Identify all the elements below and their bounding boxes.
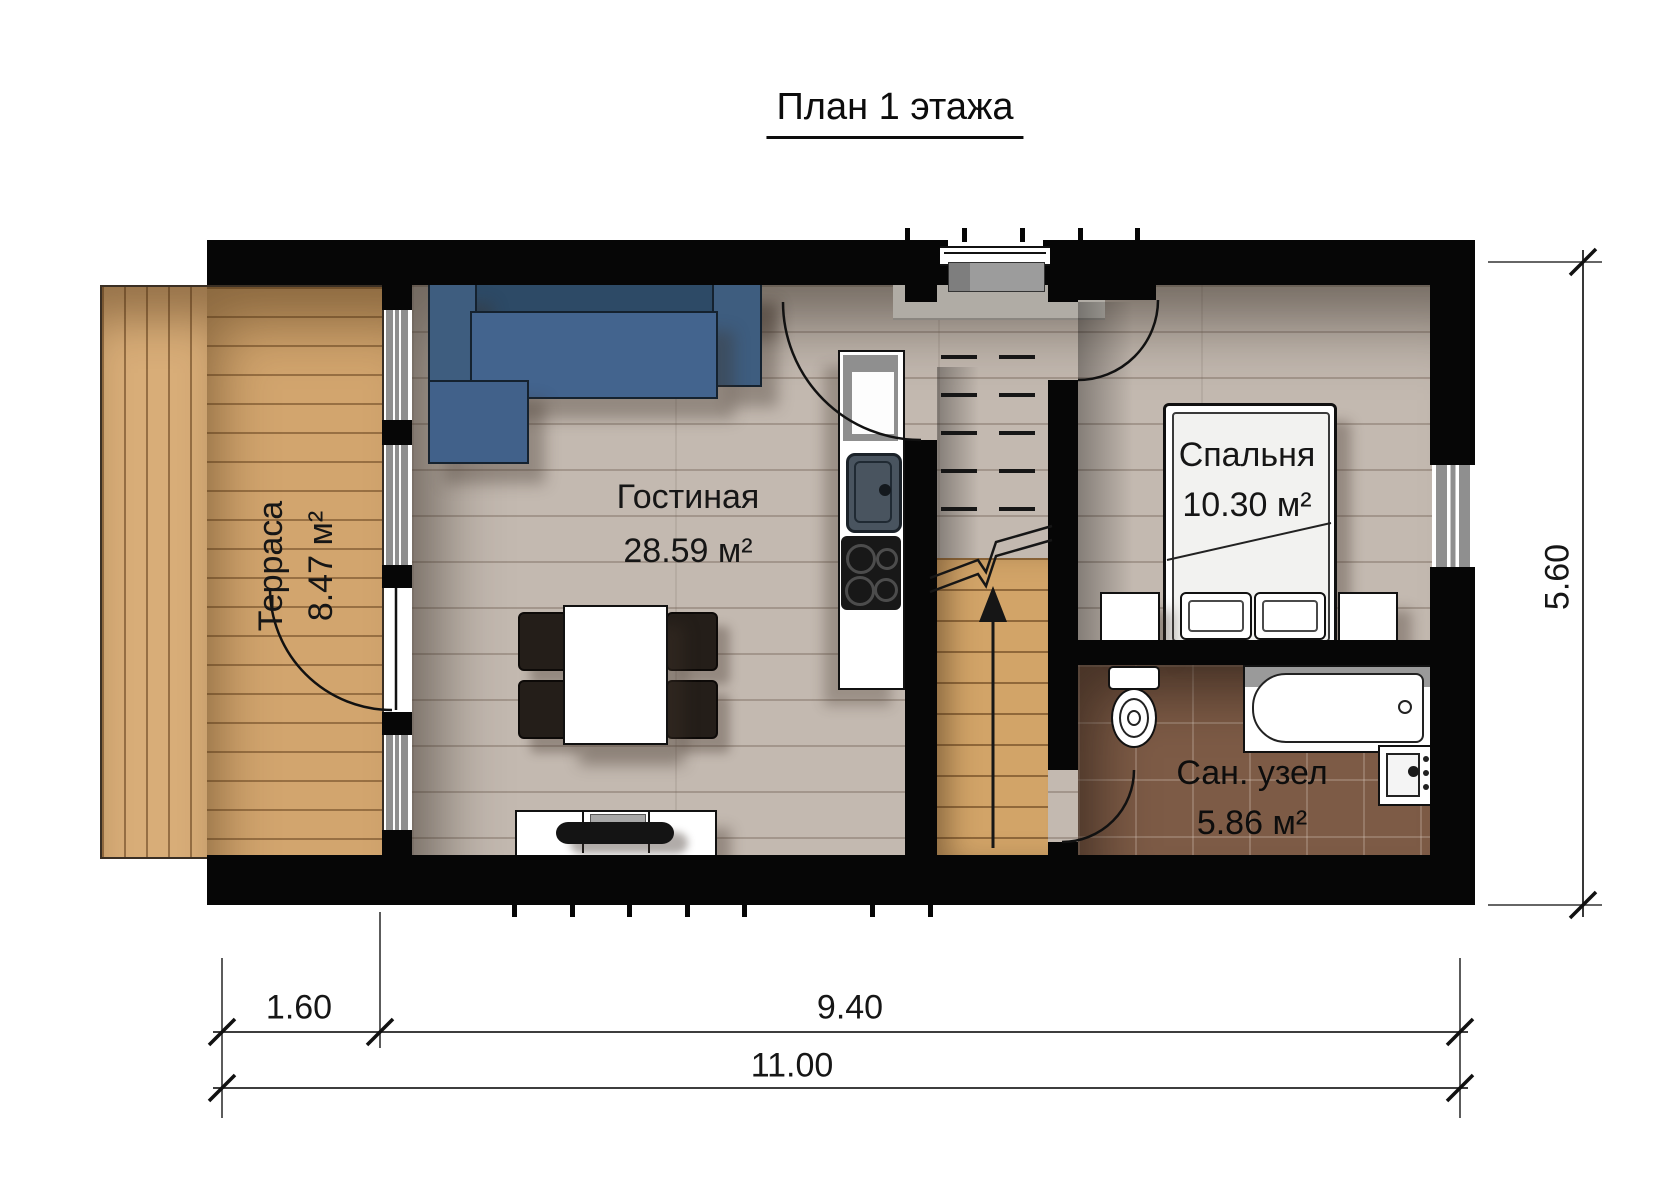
dim-depth: 5.60	[1539, 544, 1578, 610]
living-room-area: 28.59 м²	[617, 533, 760, 569]
cladding-tick	[570, 903, 575, 917]
living-room-window	[386, 735, 408, 830]
west-wall-pier	[382, 712, 412, 735]
kitchen-stair-wall	[905, 440, 937, 855]
bedroom-bathroom-divider-wall	[1078, 640, 1432, 665]
west-wall-pier	[382, 565, 412, 588]
floor-plan-canvas: План 1 этажа	[0, 0, 1680, 1187]
exterior-wall-top-left	[207, 240, 948, 285]
tv-screen	[556, 822, 674, 844]
cooktop-burner-2	[876, 548, 898, 570]
washbasin-knob	[1423, 784, 1429, 790]
cooktop-burner-1	[846, 544, 876, 574]
exterior-wall-bottom	[207, 855, 1475, 905]
plan-title: План 1 этажа	[766, 86, 1023, 139]
bedroom-label: Спальня 10.30 м²	[1179, 430, 1316, 530]
terrace-label: Терраса 8.47 м²	[246, 501, 346, 631]
dining-chair	[666, 612, 718, 671]
terrace-area: 8.47 м²	[296, 501, 346, 631]
dining-chair	[666, 680, 718, 739]
living-room-window	[386, 445, 408, 565]
bathtub-drain	[1398, 700, 1412, 714]
terrace-name: Терраса	[246, 501, 296, 631]
staircase-lower-flight	[937, 558, 1048, 855]
dim-house-width: 9.40	[817, 989, 883, 1028]
cladding-tick	[685, 903, 690, 917]
exterior-wall-top-right	[1043, 240, 1475, 285]
west-wall-pier	[382, 420, 412, 445]
cooktop-burner-3	[845, 576, 875, 606]
cladding-tick	[1135, 228, 1140, 242]
bedroom-door-leaf	[1078, 285, 1156, 300]
cladding-tick	[962, 228, 967, 242]
bathroom-name: Сан. узел	[1176, 748, 1327, 798]
bedroom-name: Спальня	[1179, 430, 1316, 480]
dim-total-width: 11.00	[751, 1047, 834, 1086]
bedroom-area: 10.30 м²	[1179, 480, 1316, 530]
entrance-threshold-line	[944, 252, 1046, 254]
kitchen-cabinet-inner	[852, 372, 894, 434]
cladding-tick	[928, 903, 933, 917]
bed-pillow-left-inner	[1188, 600, 1244, 632]
bathroom-area: 5.86 м²	[1176, 798, 1327, 848]
living-room-name: Гостиная	[617, 461, 760, 533]
cooktop-burner-4	[874, 578, 898, 602]
sofa-chaise	[428, 380, 529, 464]
terrace-edge-decking	[100, 285, 211, 859]
exterior-wall-east-lower	[1430, 567, 1475, 855]
cladding-tick	[512, 903, 517, 917]
cladding-tick	[1020, 228, 1025, 242]
west-wall-pier	[382, 830, 412, 855]
nightstand-left	[1100, 592, 1160, 644]
cladding-tick	[1078, 228, 1083, 242]
cladding-tick	[905, 228, 910, 242]
cladding-tick	[627, 903, 632, 917]
toilet-tank	[1108, 666, 1160, 690]
bed-pillow-right-inner	[1262, 600, 1318, 632]
bathroom-west-wall-stub	[1048, 842, 1078, 855]
dining-table	[563, 605, 668, 745]
washbasin-knob	[1423, 770, 1429, 776]
cladding-tick	[870, 903, 875, 917]
sofa-armrest-right	[712, 283, 762, 387]
bedroom-window	[1436, 465, 1470, 567]
nightstand-right	[1338, 592, 1398, 644]
kitchen-faucet	[879, 484, 891, 496]
dim-terrace-width: 1.60	[266, 989, 332, 1028]
living-room-label: Гостиная 28.59 м²	[617, 461, 760, 569]
bathroom-west-wall	[1048, 640, 1078, 770]
kitchen-stair-wall-stub	[905, 285, 937, 302]
entrance-door	[948, 262, 1045, 292]
west-wall-pier	[382, 285, 412, 310]
bathroom-label: Сан. узел 5.86 м²	[1176, 748, 1327, 848]
exterior-wall-east-upper	[1430, 285, 1475, 465]
cladding-tick	[742, 903, 747, 917]
living-room-window	[386, 310, 408, 420]
bedroom-wall-shadow	[1078, 302, 1133, 640]
toilet-drain	[1127, 710, 1141, 726]
bedroom-west-wall	[1048, 380, 1078, 640]
bedroom-wall-stub	[1048, 285, 1078, 302]
washbasin-knob	[1423, 756, 1429, 762]
washbasin-faucet	[1408, 766, 1419, 777]
